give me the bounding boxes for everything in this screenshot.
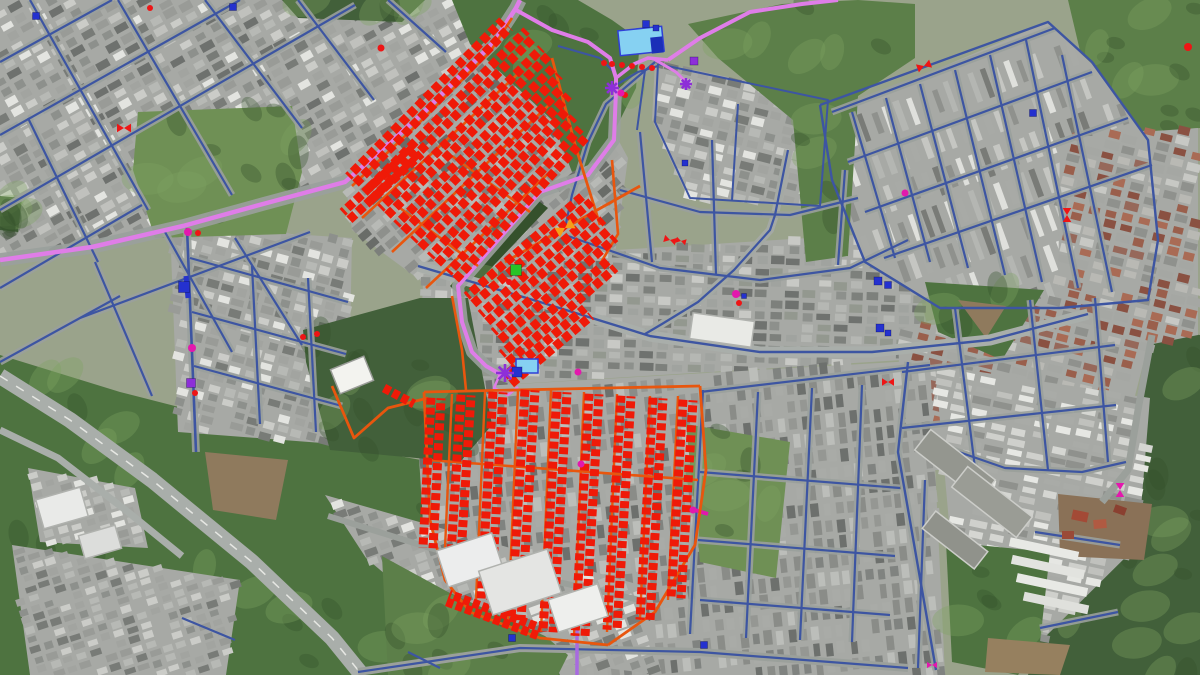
node-marker[interactable] <box>619 62 625 68</box>
building-footprint <box>1062 531 1074 539</box>
node-marker[interactable] <box>639 64 645 70</box>
map-viewport[interactable] <box>0 0 1200 675</box>
node-marker[interactable] <box>314 331 320 337</box>
junction-marker[interactable] <box>701 642 708 649</box>
junction-marker[interactable] <box>682 160 688 166</box>
junction-marker[interactable] <box>230 4 237 11</box>
junction-marker[interactable] <box>742 294 747 299</box>
junction-marker[interactable] <box>885 330 891 336</box>
satellite-map <box>0 0 1200 675</box>
junction-marker[interactable] <box>643 21 650 28</box>
node-marker[interactable] <box>609 61 615 67</box>
building-footprint <box>1093 519 1107 529</box>
node-marker[interactable] <box>1184 43 1192 51</box>
junction-marker[interactable] <box>874 277 882 285</box>
node-marker[interactable] <box>736 300 742 306</box>
junction-marker[interactable] <box>876 324 884 332</box>
node-marker[interactable] <box>188 344 196 352</box>
node-marker[interactable] <box>184 228 192 236</box>
junction-marker[interactable] <box>179 282 190 293</box>
node-marker[interactable] <box>378 45 385 52</box>
facility-marker[interactable] <box>690 57 698 65</box>
junction-marker[interactable] <box>33 13 40 20</box>
junction-marker[interactable] <box>1030 110 1037 117</box>
node-marker[interactable] <box>902 190 909 197</box>
node-marker[interactable] <box>192 390 198 396</box>
node-marker[interactable] <box>506 279 512 285</box>
node-marker[interactable] <box>195 230 201 236</box>
node-marker[interactable] <box>300 334 306 340</box>
node-marker[interactable] <box>578 461 585 468</box>
node-marker[interactable] <box>618 90 625 97</box>
node-marker[interactable] <box>732 290 740 298</box>
junction-marker[interactable] <box>509 635 516 642</box>
node-marker[interactable] <box>690 507 697 514</box>
junction-marker[interactable] <box>653 25 659 31</box>
node-marker[interactable] <box>147 5 153 11</box>
node-marker[interactable] <box>575 369 582 376</box>
station-marker[interactable] <box>511 265 522 276</box>
junction-marker[interactable] <box>885 282 892 289</box>
building-footprint <box>650 36 664 53</box>
node-marker[interactable] <box>601 60 607 66</box>
node-marker[interactable] <box>649 65 655 71</box>
node-marker[interactable] <box>629 63 635 69</box>
facility-marker[interactable] <box>187 379 196 388</box>
hydrant-marker[interactable] <box>496 364 514 382</box>
